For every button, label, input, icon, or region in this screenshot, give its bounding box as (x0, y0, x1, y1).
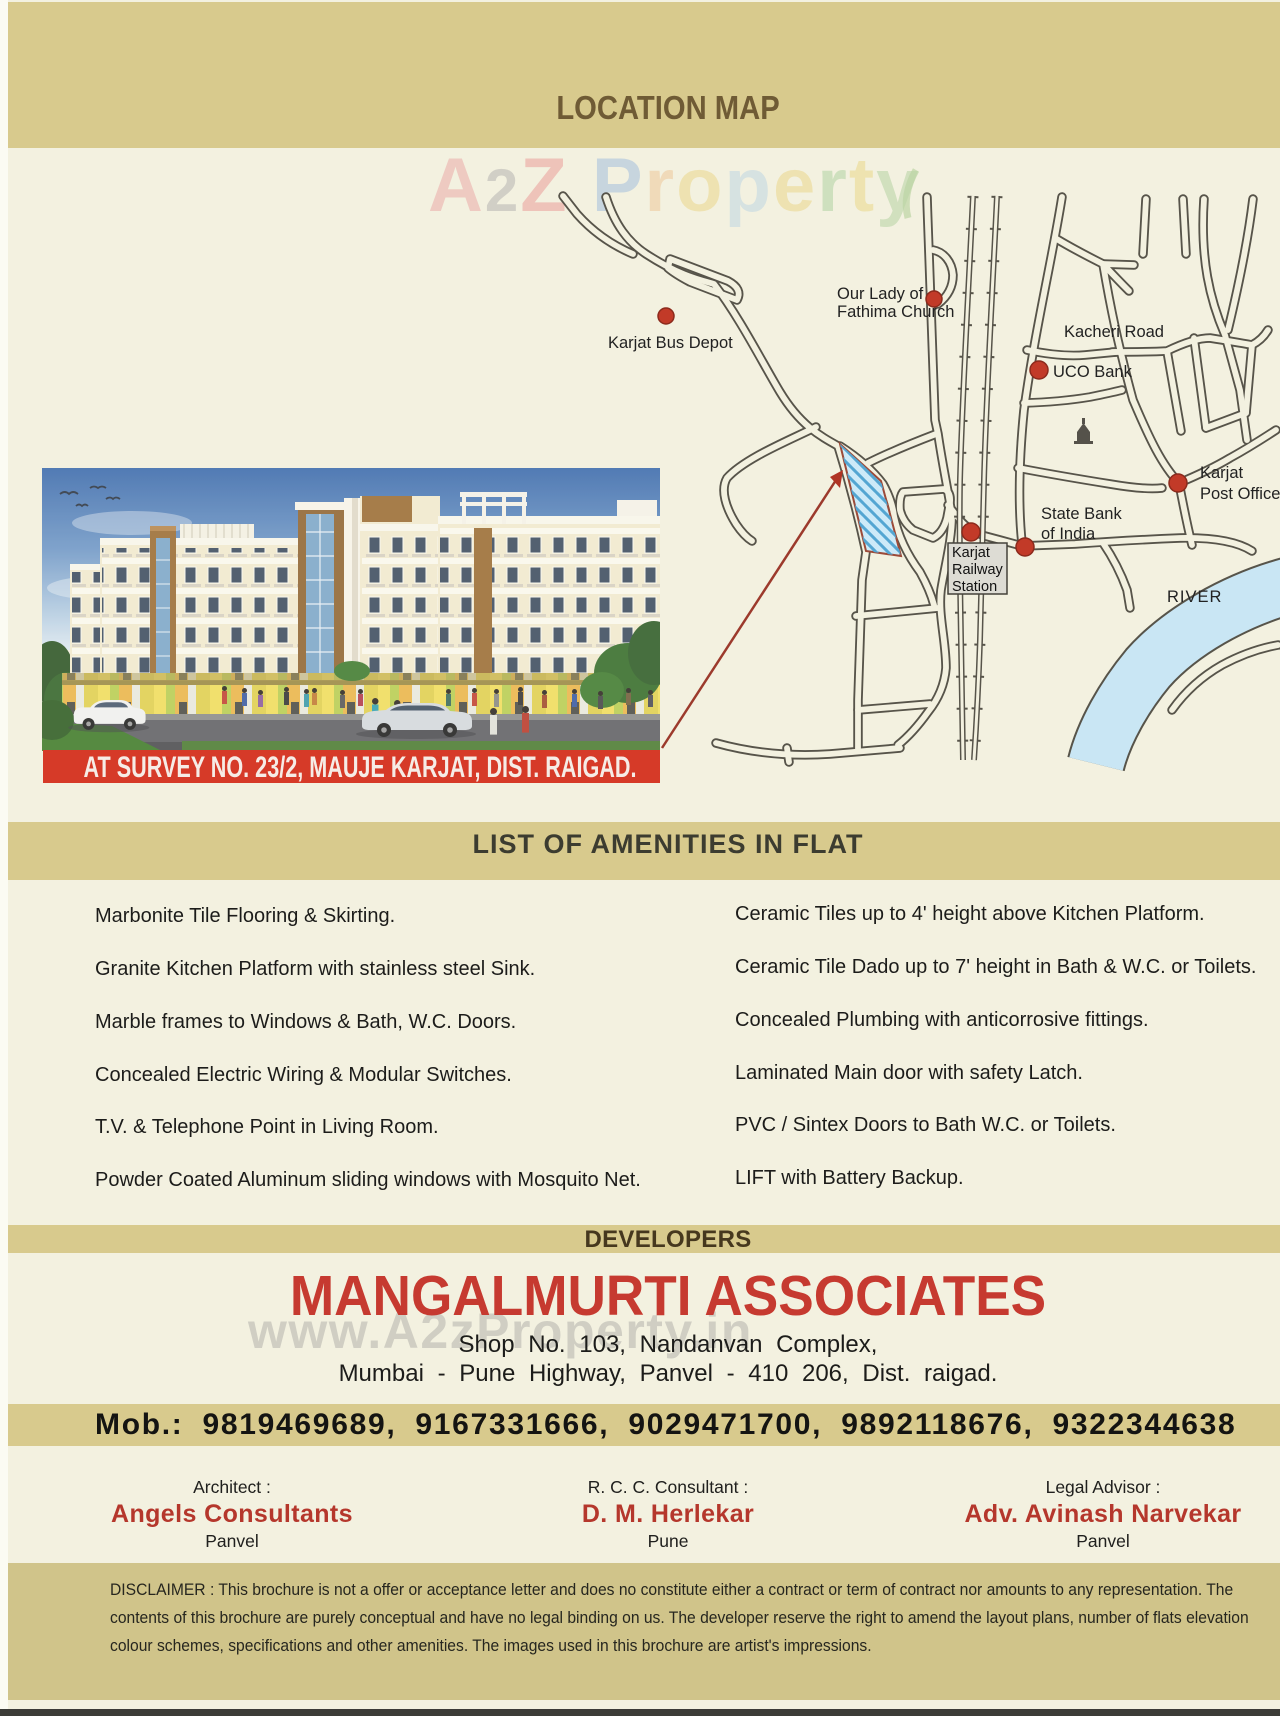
svg-text:Railway: Railway (952, 562, 1004, 578)
svg-text:Karjat Bus Depot: Karjat Bus Depot (608, 334, 733, 352)
svg-text:UCO Bank: UCO Bank (1053, 363, 1133, 381)
svg-text:RIVER: RIVER (1167, 588, 1222, 606)
svg-text:Kacheri Road: Kacheri Road (1064, 323, 1164, 341)
svg-text:Station: Station (952, 579, 997, 595)
svg-text:Karjat: Karjat (1200, 464, 1244, 482)
svg-text:State Bank: State Bank (1041, 505, 1122, 523)
svg-text:of India: of India (1041, 525, 1096, 543)
svg-text:Our Lady of: Our Lady of (837, 285, 924, 303)
svg-text:Post Office: Post Office (1200, 485, 1280, 503)
svg-text:Karjat: Karjat (952, 545, 990, 561)
svg-text:Fathima Church: Fathima Church (837, 303, 954, 321)
